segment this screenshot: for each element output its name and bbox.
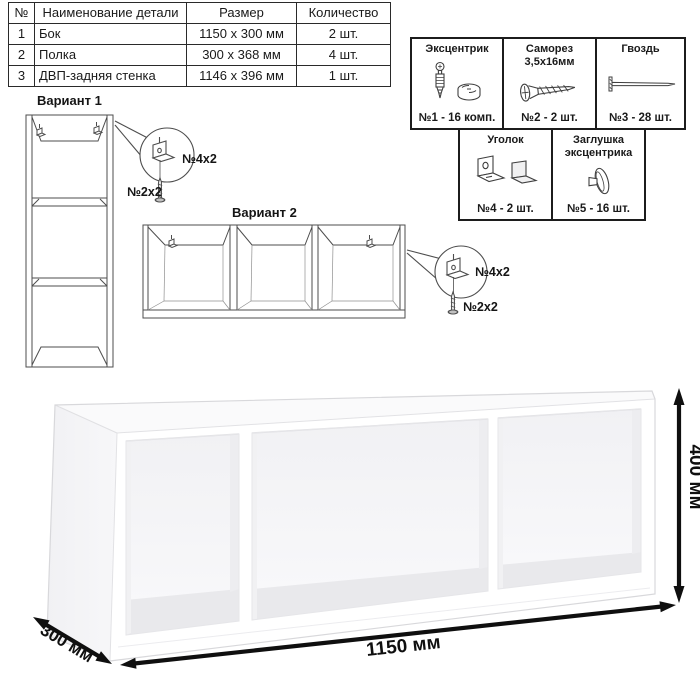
screw-count-label: №2х2	[127, 185, 162, 199]
col-header-size: Размер	[187, 3, 297, 24]
screw-icon	[511, 72, 589, 108]
bracket-count-label: №4х2	[182, 152, 217, 166]
col-header-name: Наименование детали	[35, 3, 187, 24]
part-name: Бок	[35, 24, 187, 45]
hardware-label: Гвоздь	[621, 43, 659, 56]
variant1-title: Вариант 1	[37, 93, 102, 108]
cam-cap-icon	[560, 161, 638, 201]
hardware-count: №5 - 16 шт.	[567, 203, 630, 215]
minifix-cam-icon	[418, 61, 496, 107]
hardware-count: №3 - 28 шт.	[609, 112, 672, 124]
hardware-item-nail: Гвоздь №3 - 28 шт.	[595, 37, 686, 130]
shelf-3d-body	[47, 391, 655, 661]
hardware-label: Уголок	[487, 134, 523, 147]
part-num: 3	[9, 66, 35, 87]
hardware-item-screw: Саморез 3,5х16мм №2 - 2 шт.	[502, 37, 597, 130]
variant1-shelf-outline	[26, 115, 113, 367]
part-size: 300 x 368 мм	[187, 45, 297, 66]
assembly-instruction-page: № Наименование детали Размер Количество …	[0, 0, 700, 690]
hardware-item-eccentric: Эксцентрик №1 - 16 комп.	[410, 37, 504, 130]
part-num: 1	[9, 24, 35, 45]
bracket-count-label: №4х2	[475, 265, 510, 279]
variant2-shelf-outline	[143, 225, 405, 318]
screw-count-label: №2х2	[463, 300, 498, 314]
hardware-item-cam-cap: Заглушка эксцентрика №5 - 16 шт.	[551, 128, 646, 221]
variant2-drawing: №4х2 №2х2	[135, 198, 520, 333]
hardware-count: №1 - 16 комп.	[419, 112, 496, 124]
mini-bracket-icon	[37, 124, 45, 137]
part-qty: 2 шт.	[297, 24, 391, 45]
hardware-count: №2 - 2 шт.	[521, 112, 577, 124]
table-header-row: № Наименование детали Размер Количество	[9, 3, 391, 24]
col-header-num: №	[9, 3, 35, 24]
part-size: 1146 x 396 мм	[187, 66, 297, 87]
part-qty: 4 шт.	[297, 45, 391, 66]
mini-bracket-icon	[367, 235, 375, 248]
table-row: 1 Бок 1150 x 300 мм 2 шт.	[9, 24, 391, 45]
table-row: 3 ДВП-задняя стенка 1146 x 396 мм 1 шт.	[9, 66, 391, 87]
corner-bracket-icon	[466, 153, 546, 197]
main-shelf-render: 400 мм 1150 мм 300 мм	[0, 375, 700, 690]
hardware-label: Саморез 3,5х16мм	[506, 43, 593, 68]
height-label: 400 мм	[685, 444, 700, 509]
part-qty: 1 шт.	[297, 66, 391, 87]
nail-icon	[602, 69, 680, 99]
height-arrow	[674, 388, 685, 603]
hardware-label: Заглушка эксцентрика	[555, 134, 642, 159]
hardware-label: Эксцентрик	[425, 43, 488, 56]
mini-bracket-icon	[169, 235, 177, 248]
part-num: 2	[9, 45, 35, 66]
part-name: ДВП-задняя стенка	[35, 66, 187, 87]
parts-table: № Наименование детали Размер Количество …	[8, 2, 391, 87]
mini-bracket-icon	[94, 122, 102, 135]
part-size: 1150 x 300 мм	[187, 24, 297, 45]
col-header-qty: Количество	[297, 3, 391, 24]
part-name: Полка	[35, 45, 187, 66]
table-row: 2 Полка 300 x 368 мм 4 шт.	[9, 45, 391, 66]
